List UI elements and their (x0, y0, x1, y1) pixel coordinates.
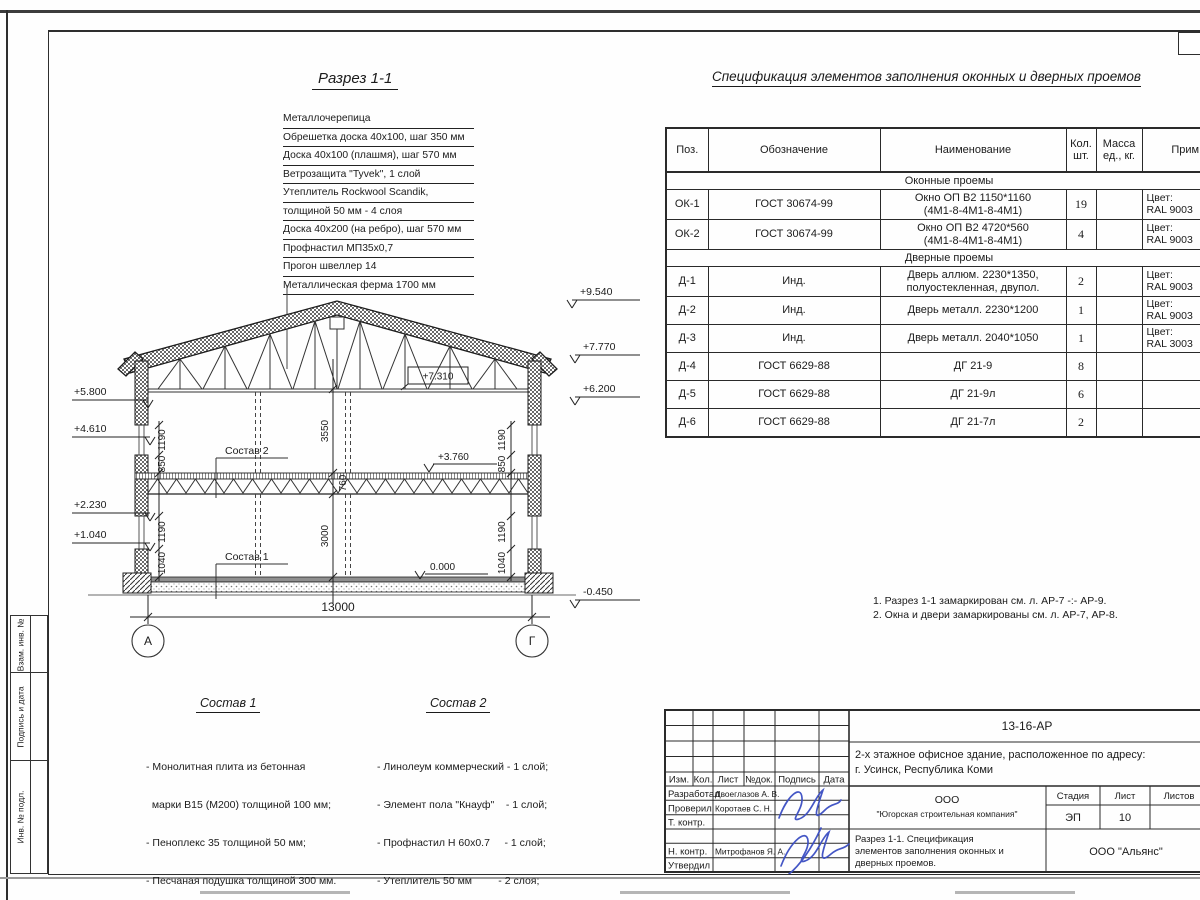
drawing-sheet: Взам. инв. № Подпись и дата Инв. № подл.… (0, 0, 1200, 900)
sostav1-label: Состав 1 (225, 551, 269, 563)
cell-pos: Д-5 (666, 381, 708, 409)
dim-chain-center: 3550 760 3000 (320, 359, 349, 603)
cell-design: ГОСТ 6629-88 (708, 381, 880, 409)
cell-pos: Д-6 (666, 409, 708, 438)
cell-qty: 4 (1066, 220, 1096, 250)
sostav1-line: - Песчаная подушка толщиной 300 мм. (146, 875, 336, 888)
sidebar-label-cell: Взам. инв. № (11, 616, 31, 673)
sidebar-label: Инв. № подл. (16, 791, 26, 844)
cell-name: Окно ОП В2 4720*560(4М1-8-4М1-8-4М1) (880, 220, 1066, 250)
cell-pos: ОК-1 (666, 190, 708, 220)
col-header-pos: Поз. (666, 128, 708, 172)
cell-note-2: RAL 3003 (1147, 339, 1200, 351)
cell-note-2: RAL 9003 (1147, 282, 1200, 294)
col-header-qty-1: Кол. (1067, 138, 1096, 151)
tb-org-line1: ООО (935, 794, 960, 806)
cell-qty: 1 (1066, 297, 1096, 325)
spec-row: ОК-1 ГОСТ 30674-99 Окно ОП В2 1150*1160(… (666, 190, 1200, 220)
notes: 1. Разрез 1-1 замаркирован см. л. АР-7 -… (873, 594, 1118, 622)
cell-note-2: RAL 9003 (1147, 205, 1200, 217)
cell-name: ДГ 21-7л (880, 409, 1066, 438)
roof-layer: Доска 40х200 (на ребро), шаг 570 мм (283, 221, 474, 240)
cell-note: Цвет:RAL 3003 (1142, 325, 1200, 353)
tb-doc-number: 13-16-АР (1002, 719, 1053, 733)
intermediate-floor (135, 473, 528, 494)
sostav2-title: Состав 2 (426, 696, 490, 713)
cell-pos: Д-2 (666, 297, 708, 325)
tb-sheet-label: Лист (1115, 791, 1136, 802)
elevation-text: +2.230 (74, 499, 107, 511)
sidebar-label-cell: Инв. № подл. (11, 761, 31, 873)
stamp-box (1178, 32, 1200, 55)
dim-text: 1190 (497, 521, 508, 543)
col-header-note: Прим. (1142, 128, 1200, 172)
cell-name: Окно ОП В2 1150*1160(4М1-8-4М1-8-4М1) (880, 190, 1066, 220)
tb-role: Проверил (668, 803, 712, 814)
tb-subtitle-line2: элементов заполнения оконных и (855, 846, 1004, 857)
interior-columns (256, 392, 351, 577)
cell-design: Инд. (708, 267, 880, 297)
roof-layer: Доска 40х100 (плашмя), шаг 570 мм (283, 147, 474, 166)
cell-name-1: Окно ОП В2 4720*560 (881, 222, 1066, 235)
elevation-text: -0.450 (583, 586, 613, 598)
tb-name: Митрофанов Я. А. (715, 846, 785, 856)
axis-markers: А Г (132, 625, 548, 657)
scan-smudge (620, 891, 790, 894)
cell-name-1: Дверь аллюм. 2230*1350, (881, 269, 1066, 282)
section-title: Разрез 1-1 (312, 70, 398, 90)
tb-col-kol: Кол. (694, 775, 713, 786)
axis-label-a: А (144, 634, 152, 648)
roof-layer: Обрешетка доска 40х100, шаг 350 мм (283, 129, 474, 148)
cell-pos: Д-4 (666, 353, 708, 381)
roof-layer: Ветрозащита "Tyvek", 1 слой (283, 166, 474, 185)
cell-note-1: Цвет: (1147, 223, 1200, 235)
ground-slab (88, 577, 576, 595)
sostav1-list: - Монолитная плита из бетонная марки В15… (146, 736, 336, 900)
spec-row: Д-1 Инд. Дверь аллюм. 2230*1350,полуосте… (666, 267, 1200, 297)
tb-col-ndok: №док. (745, 775, 773, 786)
cell-mass (1096, 409, 1142, 438)
cell-note-2: RAL 9003 (1147, 235, 1200, 247)
sidebar-cell-inv: Инв. № подл. (10, 760, 48, 874)
scan-edge-top (0, 10, 1200, 13)
cell-design: ГОСТ 6629-88 (708, 353, 880, 381)
elevation-marks-right: +9.540 +7.770 +6.200 -0.450 (567, 286, 640, 608)
spec-table: Поз. Обозначение Наименование Кол.шт. Ма… (665, 127, 1200, 438)
cell-name-2: (4М1-8-4М1-8-4М1) (881, 235, 1066, 248)
sostav2-line: - Профнастил Н 60х0.7 - 1 слой; (377, 837, 548, 850)
sostav-labels: Состав 2 Состав 1 (216, 445, 288, 599)
sostav1-line: марки В15 (М200) толщиной 100 мм; (146, 799, 336, 812)
col-header-mass-1: Масса (1097, 138, 1142, 151)
cell-name: Дверь металл. 2230*1200 (880, 297, 1066, 325)
dim-text: 1040 (497, 551, 508, 574)
cell-design: ГОСТ 6629-88 (708, 409, 880, 438)
sidebar-cell-podpis: Подпись и дата (10, 672, 48, 762)
dim-chain-left-wall: 1190 850 1190 1040 (155, 421, 168, 581)
cell-qty: 2 (1066, 409, 1096, 438)
sidebar-label-cell: Подпись и дата (11, 673, 31, 761)
sostav2-label: Состав 2 (225, 445, 269, 457)
cell-note-1: Цвет: (1147, 193, 1200, 205)
tb-name: Двоеглазов А. В. (715, 789, 779, 799)
tb-col-data: Дата (823, 775, 845, 786)
cell-note-1: Цвет: (1147, 299, 1200, 311)
cell-pos: ОК-2 (666, 220, 708, 250)
sidebar-label: Подпись и дата (16, 686, 26, 747)
roof-layer: Утеплитель Rockwool Scandik, (283, 184, 474, 203)
cell-name: ДГ 21-9л (880, 381, 1066, 409)
cell-pos: Д-3 (666, 325, 708, 353)
elevation-text: +1.040 (74, 529, 107, 541)
tb-role: Т. контр. (668, 818, 705, 829)
axis-label-g: Г (529, 634, 536, 648)
sostav2-line: - Линолеум коммерческий - 1 слой; (377, 761, 548, 774)
dim-text: 1190 (497, 429, 508, 451)
note-line: 2. Окна и двери замаркированы см. л. АР-… (873, 608, 1118, 622)
cell-name-2: полуостекленная, двупол. (881, 282, 1066, 295)
cell-qty: 1 (1066, 325, 1096, 353)
cell-name: ДГ 21-9 (880, 353, 1066, 381)
cell-design: ГОСТ 30674-99 (708, 190, 880, 220)
group-label: Оконные проемы (666, 172, 1200, 190)
cell-note: Цвет:RAL 9003 (1142, 220, 1200, 250)
tb-sheets-label: Листов (1164, 791, 1195, 802)
tb-stage-value: ЭП (1065, 812, 1081, 824)
title-block: Изм. Кол. Лист №док. Подпись Дата Разраб… (663, 708, 1200, 874)
elevation-text: +6.200 (583, 383, 616, 395)
elevation-text: 0.000 (430, 562, 455, 573)
cell-qty: 8 (1066, 353, 1096, 381)
cell-name-1: Окно ОП В2 1150*1160 (881, 192, 1066, 205)
cell-note-2: RAL 9003 (1147, 311, 1200, 323)
col-header-qty-2: шт. (1067, 150, 1096, 163)
cell-name: Дверь металл. 2040*1050 (880, 325, 1066, 353)
elevation-text: +7.310 (423, 372, 454, 383)
scan-edge-left (6, 10, 8, 900)
tb-sheet-value: 10 (1119, 812, 1131, 824)
tb-name: Коротаев С. Н. (715, 803, 772, 813)
roof-layer: Металлочерепица (283, 110, 474, 129)
cell-qty: 6 (1066, 381, 1096, 409)
dim-total: 13000 (130, 595, 550, 624)
tb-role: Утвердил (668, 861, 710, 872)
spec-row: ОК-2 ГОСТ 30674-99 Окно ОП В2 4720*560(4… (666, 220, 1200, 250)
elevation-text: +5.800 (74, 386, 107, 398)
dim-text: 3550 (320, 419, 331, 442)
cell-note: Цвет:RAL 9003 (1142, 297, 1200, 325)
spec-row: Д-2 Инд. Дверь металл. 2230*1200 1 Цвет:… (666, 297, 1200, 325)
cell-mass (1096, 297, 1142, 325)
tb-role: Н. контр. (668, 846, 707, 857)
cell-mass (1096, 220, 1142, 250)
tb-subtitle-line1: Разрез 1-1. Спецификация (855, 834, 974, 845)
tb-org-line2: "Югорская строительная компания" (877, 809, 1018, 819)
spec-header-row: Поз. Обозначение Наименование Кол.шт. Ма… (666, 128, 1200, 172)
sidebar-label: Взам. инв. № (16, 618, 26, 671)
spec-row: Д-3 Инд. Дверь металл. 2040*1050 1 Цвет:… (666, 325, 1200, 353)
spec-row: Д-4 ГОСТ 6629-88 ДГ 21-9 8 (666, 353, 1200, 381)
tb-col-izm: Изм. (669, 775, 689, 786)
tb-role: Разработал (668, 789, 720, 800)
dim-text: 1190 (157, 521, 168, 543)
elevation-text: +7.770 (583, 341, 616, 353)
col-header-design: Обозначение (708, 128, 880, 172)
cell-name: Дверь аллюм. 2230*1350,полуостекленная, … (880, 267, 1066, 297)
cell-note (1142, 381, 1200, 409)
cell-mass (1096, 325, 1142, 353)
sostav1-line: - Пеноплекс 35 толщиной 50 мм; (146, 837, 336, 850)
sidebar-cell-vzam: Взам. инв. № (10, 615, 48, 674)
tb-object-line1: 2-х этажное офисное здание, расположенно… (855, 749, 1145, 761)
dim-text: 1040 (157, 551, 168, 574)
cell-mass (1096, 381, 1142, 409)
dim-text: 13000 (321, 600, 355, 614)
dim-text: 3000 (320, 524, 331, 547)
cell-qty: 2 (1066, 267, 1096, 297)
signatures (779, 790, 849, 874)
sostav1-line: - Монолитная плита из бетонная (146, 761, 336, 774)
cell-design: Инд. (708, 297, 880, 325)
dim-text: 760 (338, 474, 349, 491)
roof-layer: толщиной 50 мм - 4 слоя (283, 203, 474, 222)
walls (135, 361, 541, 577)
elevation-text: +9.540 (580, 286, 613, 298)
dim-chain-right-wall: 1190 850 1190 1040 (497, 421, 515, 581)
sostav1-title: Состав 1 (196, 696, 260, 713)
dim-text: 1190 (157, 429, 168, 451)
sostav2-line: - Элемент пола "Кнауф" - 1 слой; (377, 799, 548, 812)
cell-note: Цвет:RAL 9003 (1142, 267, 1200, 297)
sostav2-line: - Утеплитель 50 мм - 2 слоя; (377, 875, 548, 888)
spec-row: Д-5 ГОСТ 6629-88 ДГ 21-9л 6 (666, 381, 1200, 409)
cell-qty: 19 (1066, 190, 1096, 220)
spec-group-row: Оконные проемы (666, 172, 1200, 190)
tb-object-line2: г. Усинск, Республика Коми (855, 764, 993, 776)
building-section-drawing: +5.800 +4.610 +2.230 +1.040 +9.540 +7.77… (60, 255, 665, 680)
cell-pos: Д-1 (666, 267, 708, 297)
spec-group-row: Дверные проемы (666, 250, 1200, 267)
cell-mass (1096, 190, 1142, 220)
elevation-text: +3.760 (438, 452, 469, 463)
cell-note: Цвет:RAL 9003 (1142, 190, 1200, 220)
sostav2-list: - Линолеум коммерческий - 1 слой; - Элем… (377, 736, 548, 900)
roof-truss (148, 317, 528, 392)
cell-note-1: Цвет: (1147, 270, 1200, 282)
group-label: Дверные проемы (666, 250, 1200, 267)
dim-text: 850 (157, 455, 168, 472)
cell-mass (1096, 353, 1142, 381)
tb-subtitle-line3: дверных проемов. (855, 858, 936, 869)
col-header-mass-2: ед., кг. (1097, 150, 1142, 163)
col-header-mass: Массаед., кг. (1096, 128, 1142, 172)
cell-note-1: Цвет: (1147, 327, 1200, 339)
dim-text: 850 (497, 455, 508, 472)
note-line: 1. Разрез 1-1 замаркирован см. л. АР-7 -… (873, 594, 1118, 608)
spec-title: Спецификация элементов заполнения оконны… (712, 69, 1141, 87)
cell-note (1142, 353, 1200, 381)
tb-col-list: Лист (718, 775, 739, 786)
scan-smudge (955, 891, 1075, 894)
cell-note (1142, 409, 1200, 438)
cell-name-2: (4М1-8-4М1-8-4М1) (881, 205, 1066, 218)
elevation-text: +4.610 (74, 423, 107, 435)
cell-mass (1096, 267, 1142, 297)
cell-design: Инд. (708, 325, 880, 353)
cell-design: ГОСТ 30674-99 (708, 220, 880, 250)
col-header-qty: Кол.шт. (1066, 128, 1096, 172)
tb-contractor: ООО "Альянс" (1089, 846, 1163, 858)
tb-stage-label: Стадия (1057, 791, 1089, 802)
spec-row: Д-6 ГОСТ 6629-88 ДГ 21-7л 2 (666, 409, 1200, 438)
tb-col-podpis: Подпись (778, 775, 816, 786)
col-header-name: Наименование (880, 128, 1066, 172)
